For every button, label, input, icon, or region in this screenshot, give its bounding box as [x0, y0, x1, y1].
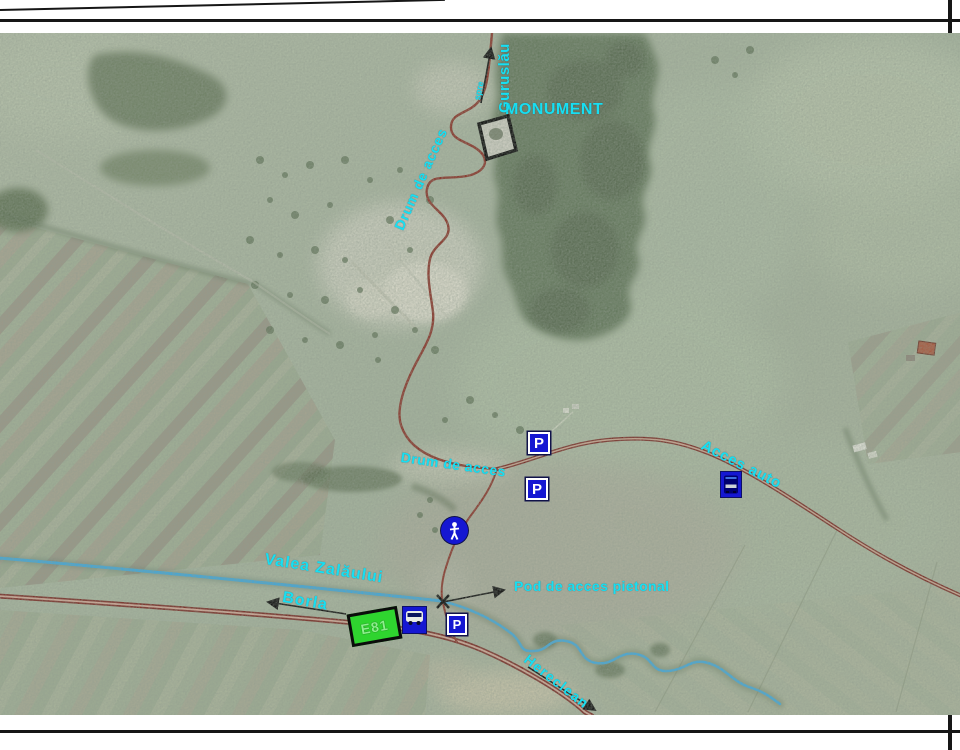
monument-label: MONUMENT	[505, 101, 603, 119]
map-page: MONUMENT spre Guruslău Drum de acces Dru…	[0, 0, 960, 750]
aerial-photo	[0, 33, 960, 715]
parking-sign-bridge: P	[447, 614, 467, 635]
frame-border-bottom	[0, 730, 960, 733]
parking-sign-upper: P	[528, 432, 550, 454]
pedestrian-icon	[441, 517, 468, 544]
parking-sign-middle: P	[526, 478, 548, 500]
scan-artifact-line	[0, 0, 445, 11]
photo-grain	[0, 33, 960, 715]
bus-stop-icon	[720, 471, 742, 498]
footbridge-label: Pod de acces pietonal	[514, 578, 669, 594]
guruslau-label: Guruslău	[496, 43, 513, 113]
bus-stop-icon	[402, 606, 427, 634]
frame-border-top	[0, 19, 960, 22]
